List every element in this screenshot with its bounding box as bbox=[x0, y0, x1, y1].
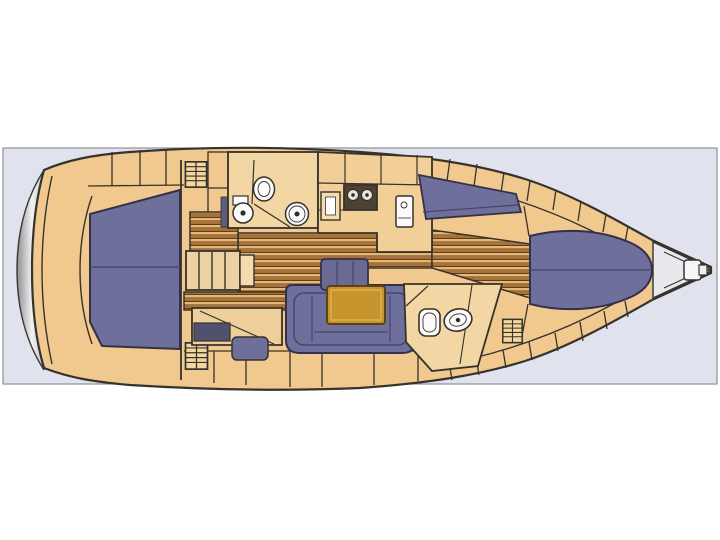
galley-sink-icon bbox=[396, 196, 413, 227]
cutting-board bbox=[321, 192, 340, 220]
floor-plan-image bbox=[0, 0, 720, 540]
sink-icon bbox=[254, 177, 275, 201]
stove-icon bbox=[344, 185, 377, 210]
locker-hatch-icon bbox=[186, 343, 208, 369]
nav-seat-back bbox=[194, 323, 230, 341]
locker-hatch-icon bbox=[503, 319, 522, 342]
aft-cabin-double-berth bbox=[90, 190, 180, 349]
nav-seat bbox=[232, 337, 268, 360]
shower-basin-icon bbox=[286, 203, 309, 226]
forward-head bbox=[228, 152, 318, 228]
yacht-floor-plan-svg bbox=[0, 0, 720, 540]
locker-hatch-icon bbox=[185, 162, 206, 187]
sink-icon bbox=[419, 309, 440, 336]
companionway-steps bbox=[186, 251, 254, 290]
salon-table bbox=[327, 286, 385, 324]
